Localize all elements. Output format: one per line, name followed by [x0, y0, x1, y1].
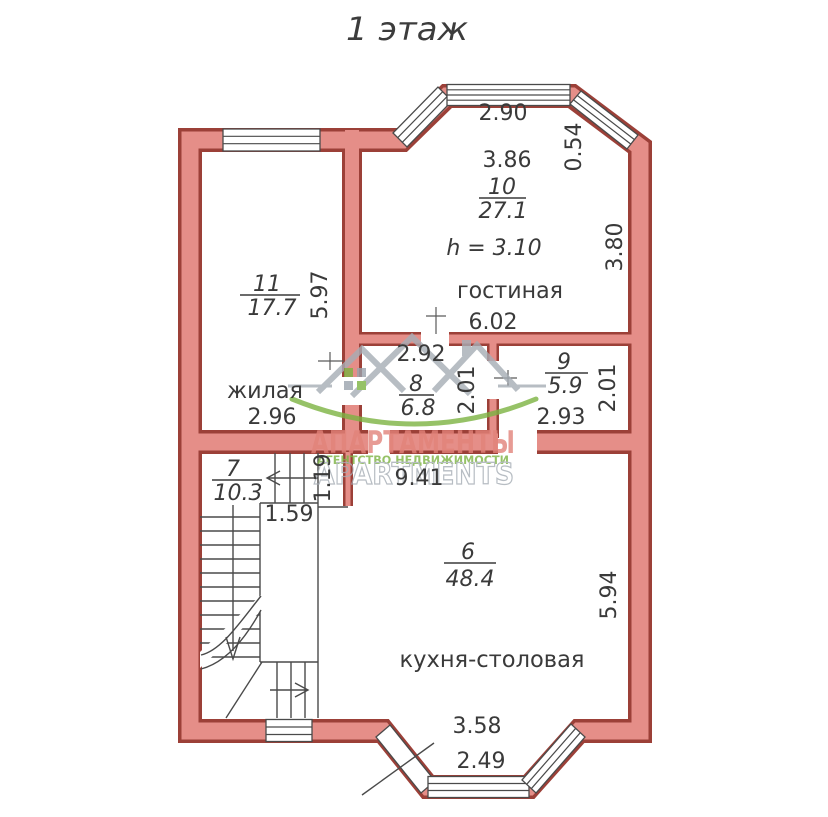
window-room11 [223, 129, 320, 151]
room6-area: 48.4 [446, 567, 495, 592]
room8-number: 8 [409, 372, 423, 397]
window-bay-bottom-center [428, 777, 529, 798]
dim-room9-right-depth: 2.01 [596, 364, 621, 413]
room7-number: 7 [226, 457, 240, 482]
dim-room8-top-width: 2.92 [397, 342, 446, 367]
dim-room8-right-depth: 2.01 [455, 366, 480, 415]
dim-room7-side: 1.19 [311, 454, 336, 503]
room10-ceiling-height: h = 3.10 [446, 236, 541, 261]
stair-winder-line [226, 662, 262, 718]
room6-number: 6 [461, 540, 475, 565]
window-bay-top-left [393, 87, 452, 147]
room11-number: 11 [253, 272, 281, 297]
dim-room10-bay-width: 2.90 [479, 101, 528, 126]
room8-area: 6.8 [401, 396, 436, 421]
page-title: 1 этаж [346, 10, 468, 48]
room10-name: гостиная [457, 278, 563, 304]
room9-area: 5.9 [548, 374, 583, 399]
room10-area: 27.1 [479, 199, 528, 224]
floor-plan-page: АПАРТАМЕНТЫ АГЕНТСТВО НЕДВИЖИМОСТИ APART… [0, 0, 828, 817]
dim-room10-top-width: 3.86 [483, 148, 532, 173]
floor-plan-drawing: АПАРТАМЕНТЫ АГЕНТСТВО НЕДВИЖИМОСТИ APART… [0, 0, 828, 817]
window-stairs-bottom [266, 720, 312, 742]
window-bay-bottom-right [522, 724, 585, 793]
dim-room6-top-width: 9.41 [395, 466, 444, 491]
room6-name: кухня-столовая [400, 647, 585, 673]
dim-room7-bottom-width: 1.59 [265, 502, 314, 527]
room11-name: жилая [227, 378, 303, 404]
room7-area: 10.3 [214, 481, 263, 506]
dim-room10-bottom-width: 6.02 [469, 310, 518, 335]
dim-room11-bottom-width: 2.96 [248, 405, 297, 430]
dim-room11-right-depth: 5.97 [308, 271, 333, 320]
room10-number: 10 [488, 175, 516, 200]
room9-number: 9 [557, 350, 571, 375]
room11-area: 17.7 [248, 296, 297, 321]
dim-room9-bottom-width: 2.93 [537, 405, 586, 430]
dim-room6-bottom-width: 3.58 [453, 714, 502, 739]
dim-room6-right-depth: 5.94 [597, 571, 622, 620]
dim-room10-right-depth: 3.80 [603, 223, 628, 272]
dim-room6-bay-width: 2.49 [457, 749, 506, 774]
dim-room10-bay-side: 0.54 [562, 123, 587, 172]
